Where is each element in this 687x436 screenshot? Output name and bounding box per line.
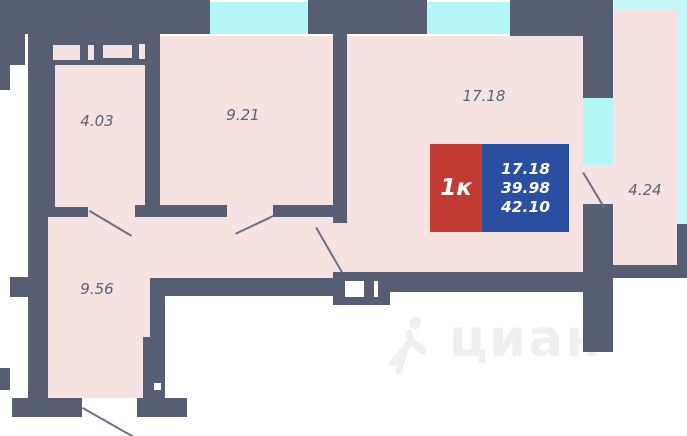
wall	[150, 278, 333, 296]
door-swing-entry	[82, 407, 134, 436]
wall	[510, 27, 583, 36]
cian-logo-icon	[385, 311, 435, 375]
wall	[28, 207, 88, 217]
wall	[145, 34, 160, 215]
wall	[308, 0, 427, 34]
wall	[0, 34, 25, 65]
wall	[12, 398, 82, 417]
vent-niche	[88, 45, 94, 60]
room-bathroom-floor	[55, 65, 145, 207]
room-area-label: 9.21	[226, 106, 259, 124]
area-summary-badge: 17.18 39.98 42.10	[482, 144, 569, 232]
window-living	[427, 2, 510, 34]
vent-niche	[139, 44, 145, 59]
wall	[137, 398, 187, 417]
floor-plan: циан 4.03 9.	[0, 0, 687, 436]
area-value: 39.98	[501, 179, 550, 198]
room-area-label: 17.18	[463, 87, 506, 105]
room-area-label: 9.56	[80, 280, 113, 298]
vent-niche	[103, 45, 132, 58]
living-area-value: 17.18	[501, 160, 550, 179]
room-area-label: 4.24	[628, 181, 661, 199]
wall	[510, 0, 613, 27]
wall	[583, 27, 613, 98]
wall	[273, 205, 333, 217]
shaft-cutout	[154, 383, 161, 390]
wall	[28, 217, 48, 398]
window-kitchen	[210, 2, 308, 34]
total-area-value: 42.10	[501, 198, 550, 217]
room-area-label: 4.03	[80, 112, 113, 130]
wall	[583, 204, 613, 352]
wall	[333, 34, 347, 223]
wall	[10, 277, 28, 297]
window-balcony-top	[613, 0, 687, 10]
apartment-type-badge: 1к	[430, 144, 482, 232]
wall	[608, 265, 687, 278]
wall	[150, 294, 165, 337]
wall	[135, 205, 227, 217]
room-hallway-floor	[47, 205, 150, 398]
watermark-text: циан	[449, 313, 603, 365]
vent-niche	[53, 45, 80, 60]
window-balcony-inner	[583, 98, 613, 165]
wall	[0, 368, 10, 390]
wall	[0, 65, 10, 90]
wall	[677, 224, 687, 278]
apartment-type-label: 1к	[440, 175, 472, 201]
window-balcony-right	[677, 10, 687, 224]
room-balcony-floor	[613, 10, 677, 266]
cian-watermark: циан	[385, 305, 615, 385]
shaft-cutout	[374, 281, 378, 297]
wall	[0, 0, 210, 34]
shaft-cutout	[345, 281, 364, 297]
